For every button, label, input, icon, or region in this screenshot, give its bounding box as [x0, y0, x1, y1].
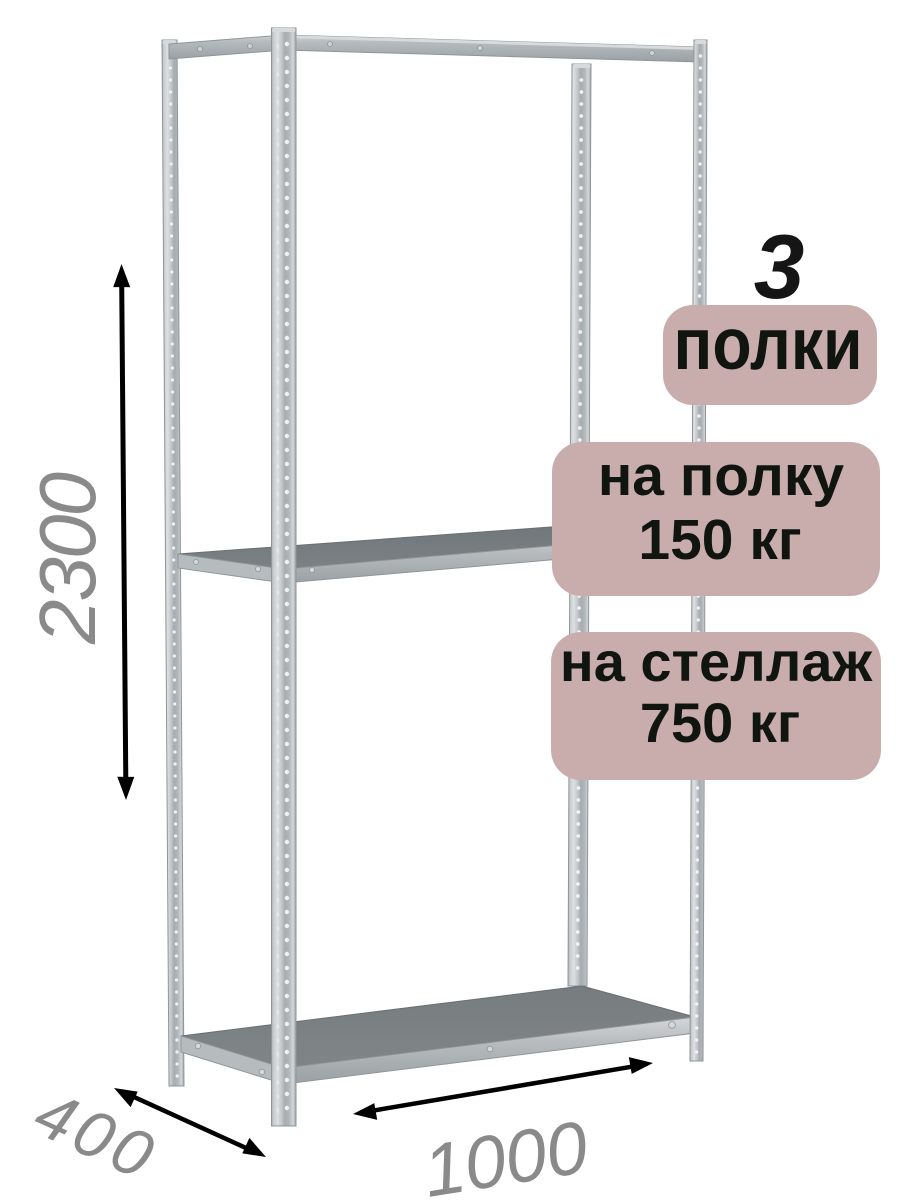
svg-text:на стеллаж: на стеллаж	[560, 630, 874, 693]
svg-text:2300: 2300	[23, 473, 112, 645]
svg-text:3: 3	[754, 217, 805, 318]
svg-text:750 кг: 750 кг	[640, 691, 800, 754]
svg-text:на полку: на полку	[598, 444, 845, 508]
svg-text:полки: полки	[674, 304, 863, 385]
svg-text:150 кг: 150 кг	[638, 508, 801, 572]
